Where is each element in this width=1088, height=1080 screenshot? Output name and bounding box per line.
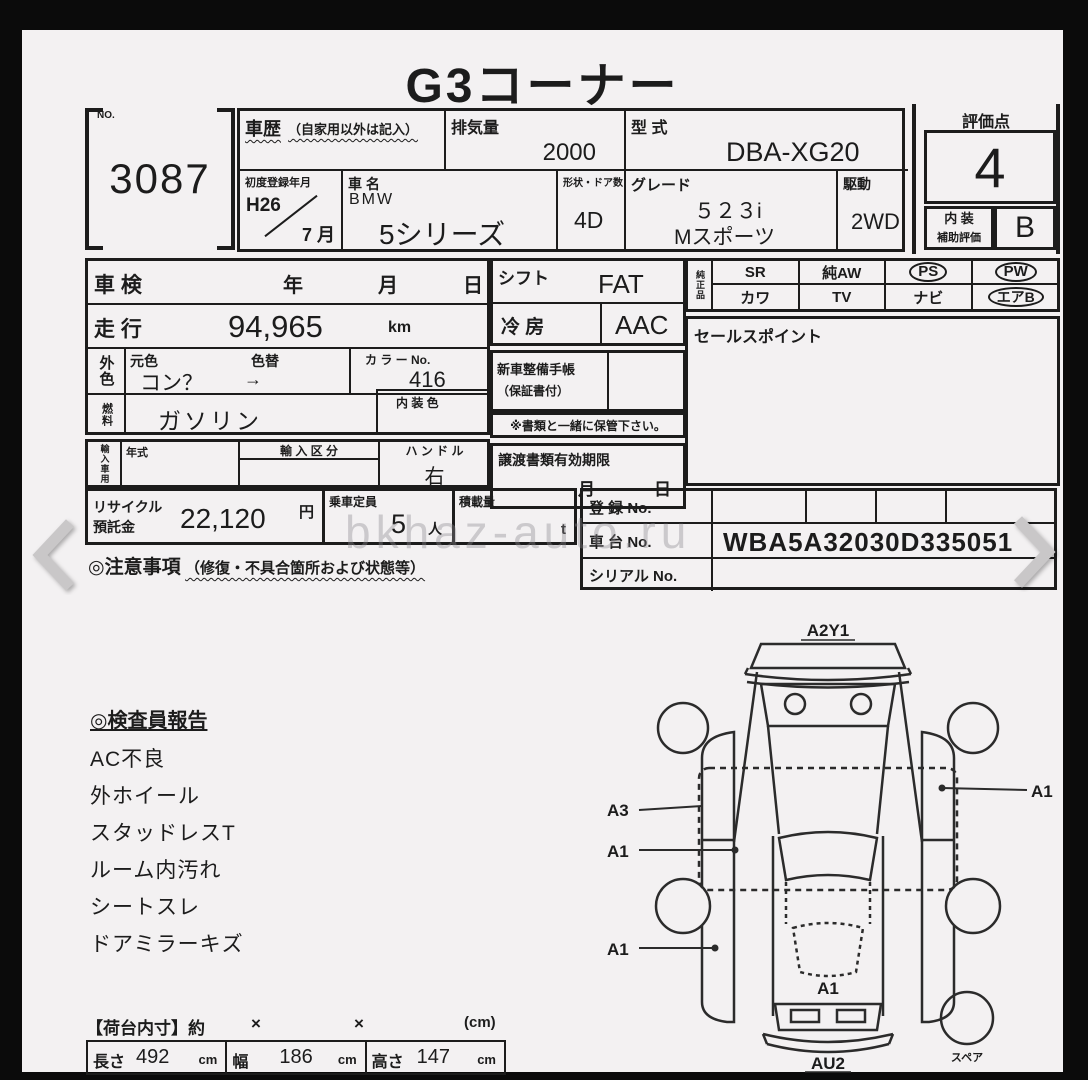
dimensions-section: 【荷台内寸】約 × × (cm) 長さ 492 cm 幅 186 cm 高さ 1… — [86, 1014, 506, 1075]
import-label: 輸入車用 — [88, 442, 122, 485]
inspector-item-1: 外ホイール — [90, 778, 244, 815]
diagram-label-left-side: A3 — [607, 801, 629, 820]
dims-times1: × — [251, 1014, 261, 1034]
grade-cell: グレード ５２３i Mスポーツ — [626, 171, 838, 251]
width-unit: cm — [338, 1052, 357, 1067]
serial-label: シリアル No. — [589, 565, 677, 586]
car-make: BMW — [349, 191, 394, 209]
chassis-label: 車 台 No. — [589, 531, 652, 552]
caution-note: （修復・不具合箇所および状態等） — [185, 560, 425, 577]
auction-sheet: G3コーナー NO. 3087 車歴 （自家用以外は記入） 排気量 2000 型… — [22, 30, 1063, 1072]
lot-number-box: NO. 3087 — [85, 108, 235, 250]
page-title: G3コーナー — [22, 46, 1063, 116]
displacement-label: 排気量 — [451, 114, 499, 138]
service-book-box: 新車整備手帳 （保証書付） — [490, 350, 686, 412]
diagram-label-spare: スペア — [951, 1051, 983, 1064]
ac-divider — [600, 304, 602, 346]
caution-line: ◎注意事項 （修復・不具合箇所および状態等） — [88, 552, 425, 579]
equipment-aw: 純AW — [800, 261, 887, 285]
handle-cell: ハ ン ド ル 右 — [378, 442, 489, 485]
color-change-arrow: → — [244, 369, 262, 390]
serial-divider — [711, 559, 713, 591]
main-left-table: 車 検 年 月 日 走 行 94,965 km 外色 元色 色替 コン？ → カ… — [85, 258, 490, 435]
fuel-row: 燃料 ガソリン 内 装 色 — [88, 395, 487, 434]
diagram-label-trunk: A1 — [817, 979, 839, 998]
width-label: 幅 — [232, 1048, 248, 1072]
height-label: 高さ — [372, 1048, 404, 1072]
recycle-label1: リサイクル — [93, 497, 162, 517]
car-name-cell: 車 名 BMW 5シリーズ — [343, 171, 558, 251]
sales-point-box: セールスポイント — [685, 316, 1060, 486]
width-cell: 幅 186 cm — [227, 1042, 366, 1073]
dims-header-label: 【荷台内寸】約 — [86, 1014, 205, 1039]
length-unit: cm — [199, 1052, 218, 1067]
dimensions-header: 【荷台内寸】約 × × (cm) — [86, 1014, 506, 1040]
grade-line2: Mスポーツ — [674, 221, 775, 251]
shaken-row: 車 検 年 月 日 — [88, 261, 487, 305]
chevron-right-icon — [1008, 512, 1060, 592]
dimensions-table: 長さ 492 cm 幅 186 cm 高さ 147 cm — [86, 1040, 506, 1075]
diagram-label-front: A2Y1 — [807, 621, 850, 640]
orig-color-value: コン？ — [140, 367, 203, 397]
mileage-row: 走 行 94,965 km — [88, 305, 487, 349]
transfer-label: 譲渡書類有効期限 — [498, 450, 610, 470]
drive-value: 2WD — [851, 209, 900, 235]
model-code-cell: 型 式 DBA-XG20 — [626, 111, 908, 171]
carousel-next-button[interactable] — [1008, 512, 1060, 595]
oem-label: 純正品 — [688, 261, 713, 309]
service-book-label-cell: 新車整備手帳 （保証書付） — [493, 353, 609, 409]
import-class-cell: 輸 入 区 分 — [238, 442, 378, 485]
first-reg-label: 初度登録年月 — [245, 174, 311, 190]
header-table: 車歴 （自家用以外は記入） 排気量 2000 型 式 DBA-XG20 初度登録… — [237, 108, 905, 252]
shift-label: シフト — [498, 264, 549, 289]
car-model: 5シリーズ — [379, 213, 505, 253]
length-cell: 長さ 492 cm — [88, 1042, 227, 1073]
score-label: 評価点 — [916, 104, 1056, 132]
shaken-label: 車 検 — [94, 269, 142, 299]
capacity-label: 乗車定員 — [329, 493, 377, 510]
capacity-unit: 人 — [428, 519, 442, 539]
equipment-airbag: エアB — [973, 285, 1060, 309]
service-book-label: 新車整備手帳 — [497, 359, 603, 378]
handle-label: ハ ン ド ル — [380, 442, 489, 460]
height-cell: 高さ 147 cm — [367, 1042, 504, 1073]
doors-cell: 形状・ドア数 4D — [558, 171, 626, 251]
displacement-cell: 排気量 2000 — [446, 111, 626, 171]
import-class-label: 輸 入 区 分 — [240, 442, 378, 460]
orig-color-cell: 元色 色替 コン？ → — [126, 349, 351, 393]
reg-divider-1 — [805, 491, 807, 522]
interior-color-label: 内 装 色 — [396, 394, 439, 411]
inspector-item-5: ドアミラーキズ — [90, 926, 244, 963]
equipment-navi: ナビ — [886, 285, 973, 309]
recycle-value: 22,120 — [180, 503, 266, 535]
year-type-cell: 年式 — [122, 442, 238, 485]
capacity-box: 乗車定員 5 人 — [325, 488, 455, 545]
doors-label: 形状・ドア数 — [563, 174, 623, 189]
history-note: （自家用以外は記入） — [288, 119, 418, 138]
height-unit: cm — [477, 1052, 496, 1067]
load-box: 積載量 t — [455, 488, 577, 545]
diagram-label-left-rear: A1 — [607, 940, 629, 959]
registration-table: 登 録 No. 車 台 No. WBA5A32030D335051 シリアル N… — [580, 488, 1057, 590]
year-type-label: 年式 — [126, 444, 148, 460]
interior-score-label2: 補助評価 — [927, 229, 991, 245]
dims-times2: × — [354, 1014, 364, 1034]
shaken-year: 年 — [283, 269, 303, 298]
reg-divider-3 — [945, 491, 947, 522]
first-reg-month: 7 月 — [302, 221, 335, 247]
diagram-label-rear: AU2 — [811, 1054, 845, 1073]
inspector-item-3: ルーム内汚れ — [90, 852, 244, 889]
recycle-unit: 円 — [299, 501, 314, 522]
mileage-value: 94,965 — [228, 309, 323, 345]
inspector-item-0: AC不良 — [90, 741, 244, 778]
first-reg-cell: 初度登録年月 H26 7 月 — [240, 171, 343, 251]
inspector-item-4: シートスレ — [90, 889, 244, 926]
shift-row: シフト FAT — [493, 261, 683, 304]
reg-no-row: 登 録 No. — [583, 491, 1054, 524]
length-value: 492 — [136, 1046, 169, 1069]
service-book-note: （保証書付） — [497, 382, 603, 399]
fuel-value: ガソリン — [158, 402, 262, 436]
equipment-ps: PS — [886, 261, 973, 285]
import-table: 輸入車用 年式 輸 入 区 分 ハ ン ド ル 右 — [85, 439, 490, 488]
model-code-value: DBA-XG20 — [726, 137, 860, 168]
reg-divider-0 — [711, 491, 713, 522]
handle-value: 右 — [380, 460, 489, 489]
ac-row: 冷 房 AAC — [493, 304, 683, 346]
capacity-value: 5 — [391, 509, 406, 540]
equipment-tv: TV — [800, 285, 887, 309]
equipment-pw: PW — [973, 261, 1060, 285]
ac-label: 冷 房 — [501, 312, 544, 339]
chassis-divider — [711, 524, 713, 557]
lot-number: 3087 — [85, 108, 235, 250]
chassis-value: WBA5A32030D335051 — [723, 527, 1013, 558]
oem-equipment-table: 純正品 SR 純AW PS PW カワ TV ナビ エアB — [685, 258, 1060, 312]
lot-number-caption: NO. — [97, 110, 115, 121]
keep-note-box: ※書類と一緒に保管下さい。 — [490, 412, 686, 438]
first-reg-year: H26 — [246, 195, 281, 217]
equipment-pw-label: PW — [995, 262, 1037, 282]
interior-score-value: B — [994, 206, 1056, 250]
load-unit: t — [561, 521, 566, 538]
equipment-sr: SR — [713, 261, 800, 285]
ac-value: AAC — [615, 310, 668, 341]
shift-value: FAT — [598, 269, 644, 300]
shift-ac-table: シフト FAT 冷 房 AAC — [490, 258, 686, 346]
model-code-label: 型 式 — [631, 114, 667, 138]
color-no-cell: カ ラ ー No. 416 — [351, 349, 489, 393]
doors-value: 4D — [574, 207, 603, 234]
interior-score-label-box: 内 装 補助評価 — [924, 206, 994, 250]
recycle-box: リサイクル 預託金 22,120 円 — [85, 488, 325, 545]
diagram-label-left-door: A1 — [607, 842, 629, 861]
drive-label: 駆動 — [843, 174, 871, 194]
reg-no-label: 登 録 No. — [589, 497, 652, 518]
caution-label: ◎注意事項 — [88, 557, 181, 578]
dims-unit-note: (cm) — [464, 1014, 496, 1031]
interior-score-label1: 内 装 — [927, 209, 991, 229]
oem-grid: SR 純AW PS PW カワ TV ナビ エアB — [713, 261, 1059, 309]
equipment-ps-label: PS — [909, 262, 947, 282]
score-box: 評価点 4 内 装 補助評価 B — [912, 104, 1060, 254]
mileage-label: 走 行 — [94, 313, 142, 343]
color-change-label: 色替 — [251, 351, 279, 371]
sales-point-label: セールスポイント — [694, 323, 822, 347]
equipment-kawa: カワ — [713, 285, 800, 309]
width-value: 186 — [279, 1046, 312, 1069]
recycle-label2: 預託金 — [93, 517, 162, 537]
inspector-item-2: スタッドレスT — [90, 815, 244, 852]
inspector-report-title: ◎検査員報告 — [90, 704, 244, 733]
ext-color-label: 外色 — [88, 349, 126, 393]
displacement-value: 2000 — [543, 139, 596, 167]
shaken-month: 月 — [378, 269, 398, 298]
serial-row: シリアル No. — [583, 559, 1054, 591]
grade-label: グレード — [631, 174, 691, 195]
length-label: 長さ — [93, 1048, 125, 1072]
history-label: 車歴 — [245, 115, 281, 141]
height-value: 147 — [417, 1046, 450, 1069]
inspector-report: ◎検査員報告 AC不良 外ホイール スタッドレスT ルーム内汚れ シートスレ ド… — [90, 704, 244, 963]
diagram-label-right-door: A1 — [1031, 782, 1053, 801]
carousel-prev-button[interactable] — [28, 515, 80, 598]
load-label: 積載量 — [459, 493, 495, 510]
damage-diagram: A2Y1 A3 A1 A1 A1 A1 AU2 スペア — [595, 620, 1055, 1080]
color-no-label: カ ラ ー No. — [365, 351, 430, 368]
equipment-airbag-label: エアB — [988, 287, 1044, 307]
drive-cell: 駆動 2WD — [838, 171, 908, 251]
chevron-left-icon — [28, 515, 80, 595]
chassis-row: 車 台 No. WBA5A32030D335051 — [583, 524, 1054, 559]
reg-divider-2 — [875, 491, 877, 522]
history-cell: 車歴 （自家用以外は記入） — [240, 111, 446, 171]
interior-color-cell: 内 装 色 — [376, 389, 489, 434]
fuel-label: 燃料 — [88, 395, 126, 434]
mileage-unit: km — [388, 319, 411, 337]
recycle-label: リサイクル 預託金 — [93, 497, 162, 537]
shaken-day: 日 — [463, 269, 483, 298]
score-value: 4 — [924, 130, 1056, 204]
